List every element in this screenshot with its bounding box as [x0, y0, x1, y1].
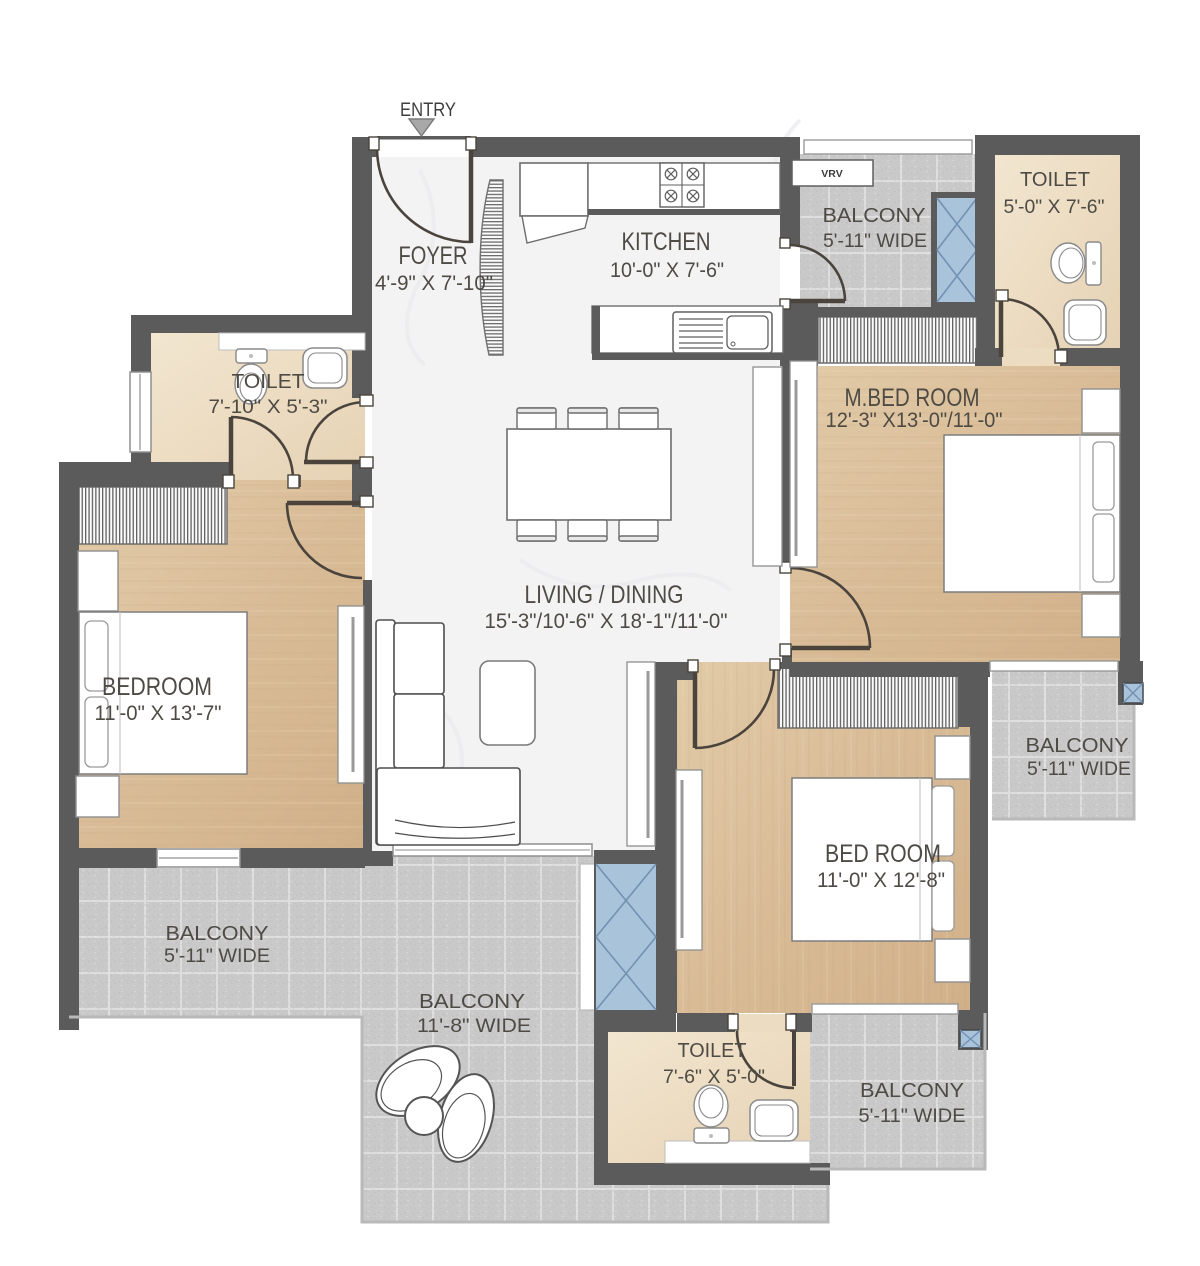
- svg-text:5'-11" WIDE: 5'-11" WIDE: [823, 231, 927, 252]
- svg-text:15'-3"/10'-6" X 18'-1"/11'-0": 15'-3"/10'-6" X 18'-1"/11'-0": [485, 610, 728, 633]
- svg-text:7'-10" X 5'-3": 7'-10" X 5'-3": [209, 397, 328, 418]
- svg-text:TOILET: TOILET: [232, 371, 305, 393]
- svg-text:KITCHEN: KITCHEN: [622, 228, 711, 256]
- svg-text:BALCONY: BALCONY: [860, 1080, 964, 1102]
- svg-text:LIVING / DINING: LIVING / DINING: [525, 581, 684, 609]
- svg-text:BALCONY: BALCONY: [1026, 735, 1129, 757]
- svg-text:BED ROOM: BED ROOM: [825, 840, 941, 868]
- svg-text:BALCONY: BALCONY: [823, 205, 926, 227]
- svg-text:11'-8" WIDE: 11'-8" WIDE: [417, 1016, 531, 1037]
- svg-text:11'-0" X 12'-8": 11'-0" X 12'-8": [817, 869, 945, 892]
- svg-text:5'-11" WIDE: 5'-11" WIDE: [859, 1106, 966, 1127]
- svg-text:BALCONY: BALCONY: [419, 991, 525, 1013]
- svg-text:TOILET: TOILET: [678, 1040, 747, 1062]
- svg-text:4'-9" X 7'-10": 4'-9" X 7'-10": [375, 272, 493, 295]
- svg-text:10'-0" X 7'-6": 10'-0" X 7'-6": [610, 259, 724, 282]
- svg-text:BEDROOM: BEDROOM: [102, 673, 212, 701]
- svg-text:ENTRY: ENTRY: [400, 100, 456, 121]
- svg-text:7'-6" X 5'-0": 7'-6" X 5'-0": [663, 1067, 765, 1088]
- svg-text:M.BED ROOM: M.BED ROOM: [845, 384, 980, 412]
- svg-text:FOYER: FOYER: [399, 242, 468, 270]
- svg-text:12'-3" X13'-0"/11'-0": 12'-3" X13'-0"/11'-0": [826, 409, 1003, 432]
- svg-text:5'-11" WIDE: 5'-11" WIDE: [164, 946, 270, 967]
- svg-text:5'-11" WIDE: 5'-11" WIDE: [1027, 759, 1131, 780]
- svg-text:11'-0" X 13'-7": 11'-0" X 13'-7": [95, 702, 222, 725]
- svg-text:VRV: VRV: [821, 168, 842, 180]
- svg-text:BALCONY: BALCONY: [166, 923, 269, 945]
- svg-text:5'-0" X 7'-6": 5'-0" X 7'-6": [1004, 197, 1105, 218]
- svg-text:TOILET: TOILET: [1020, 169, 1090, 191]
